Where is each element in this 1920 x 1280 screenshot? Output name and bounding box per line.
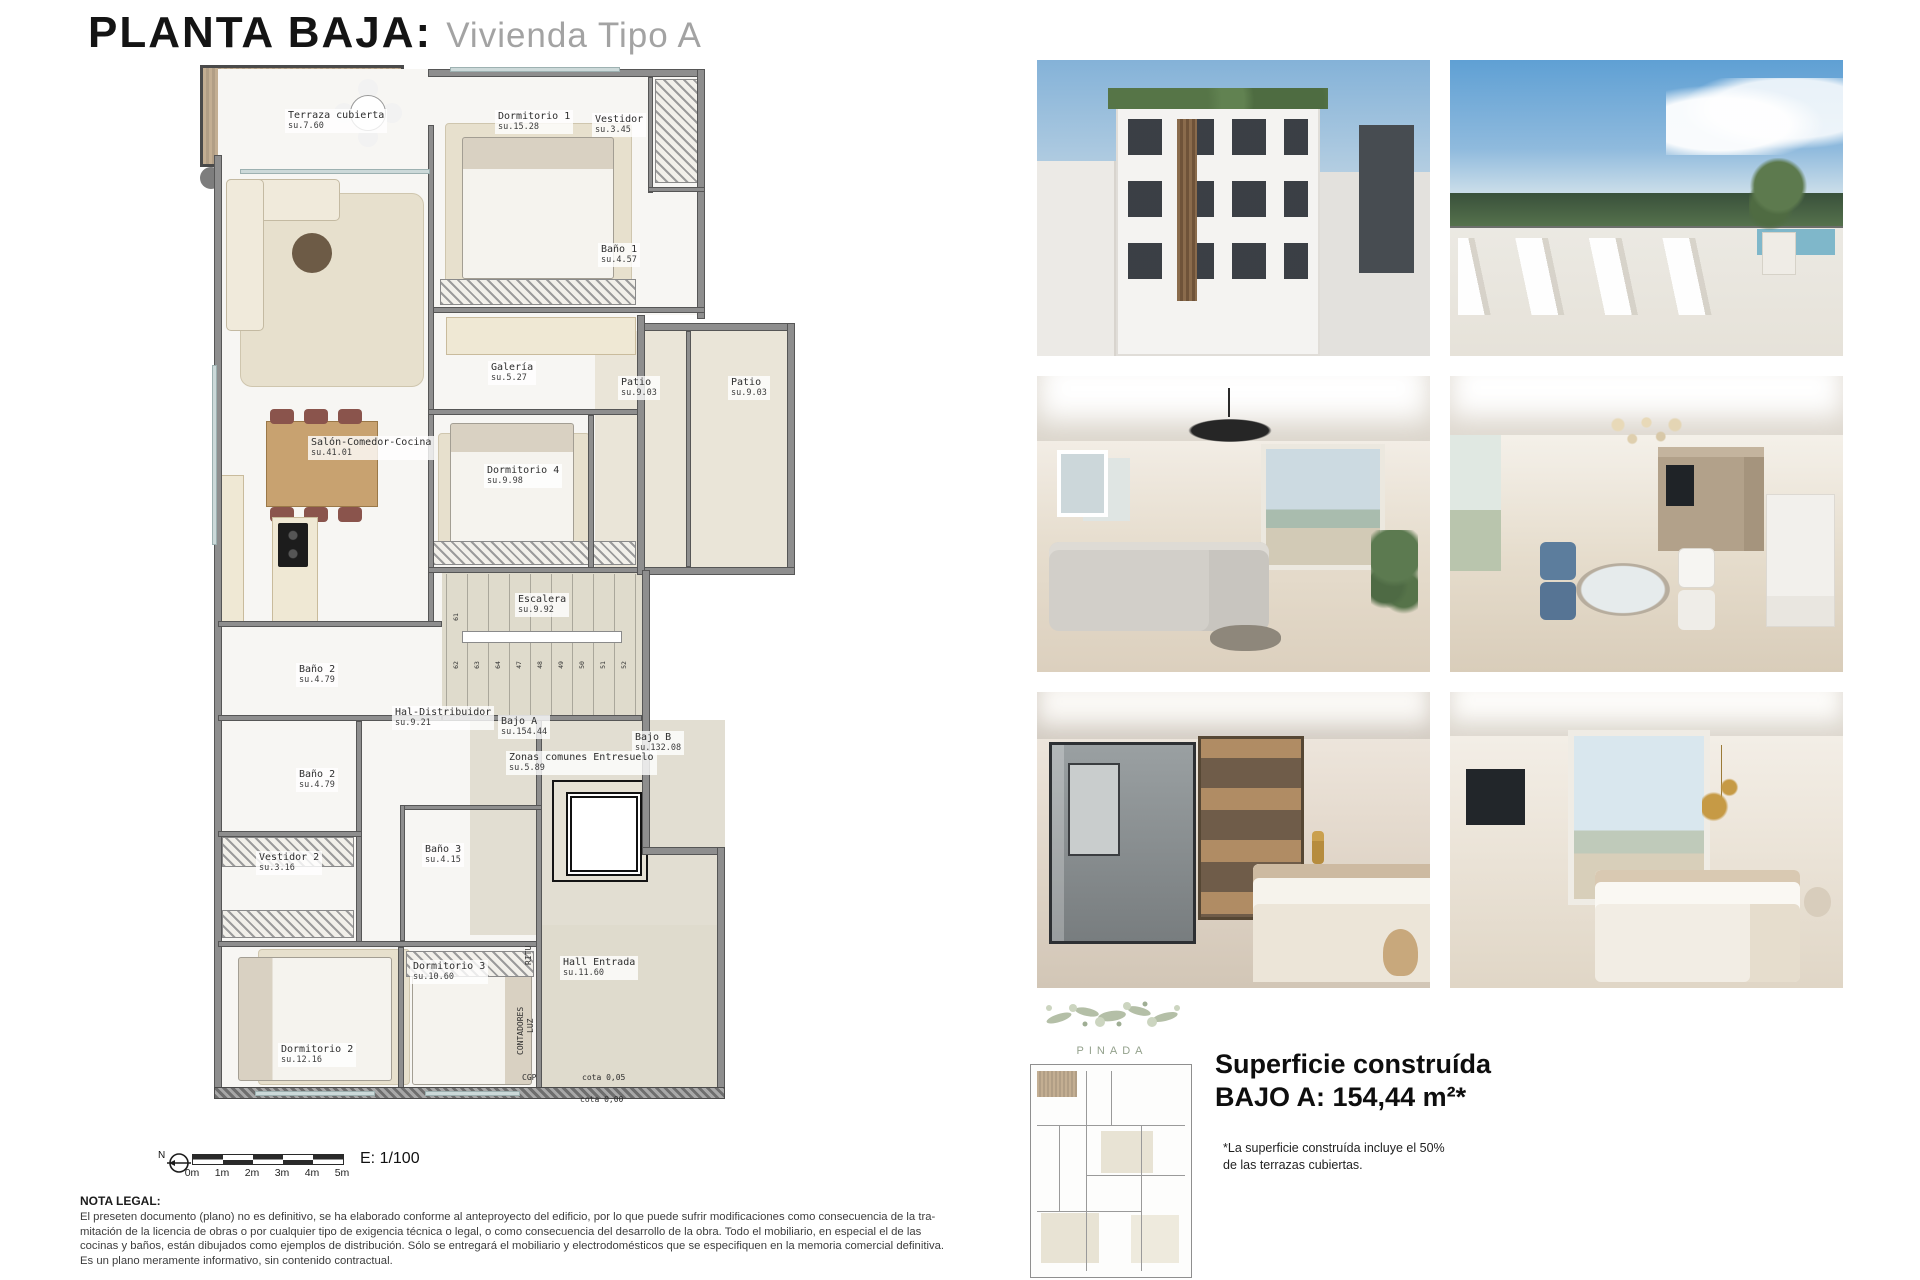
chair-icon bbox=[304, 409, 328, 424]
scale-bar: N E: 1/100 0m1m2m3m4m5m bbox=[158, 1150, 588, 1192]
decorative-graphic bbox=[1046, 1005, 1052, 1011]
wardrobe-icon bbox=[655, 79, 699, 183]
sofa-icon bbox=[226, 179, 264, 331]
window-line bbox=[212, 365, 217, 545]
decorative-graphic: Terraza cubierta bbox=[288, 110, 384, 121]
decorative-graphic: Baño 2 bbox=[299, 769, 335, 780]
decorative-graphic bbox=[1101, 1131, 1153, 1173]
mini-floor-plan bbox=[1030, 1064, 1192, 1278]
wall bbox=[398, 947, 404, 1089]
elevator-cab-icon bbox=[566, 792, 642, 876]
room-label-escalera: Escalerasu.9.92 bbox=[515, 593, 569, 617]
wall bbox=[686, 331, 691, 567]
room-label-ba-o-2: Baño 2su.4.79 bbox=[296, 663, 338, 687]
legal-heading: NOTA LEGAL: bbox=[80, 1194, 960, 1208]
wall bbox=[428, 307, 705, 313]
decorative-graphic: Galería bbox=[491, 362, 533, 373]
decorative-graphic: su.9.03 bbox=[621, 388, 657, 399]
decorative-graphic bbox=[1595, 870, 1799, 982]
page-title: PLANTA BAJA: Vivienda Tipo A bbox=[88, 8, 702, 58]
decorative-graphic: Hal-Distribuidor bbox=[395, 707, 491, 718]
decorative-graphic bbox=[1312, 831, 1324, 864]
decorative-graphic bbox=[1069, 1004, 1077, 1012]
plan-annotation-luz: LUZ bbox=[526, 1019, 535, 1033]
decorative-graphic bbox=[1540, 542, 1575, 580]
decorative-graphic bbox=[1037, 1211, 1141, 1212]
decorative-graphic bbox=[1141, 1125, 1142, 1271]
stair-number: 49 bbox=[557, 661, 565, 669]
wall bbox=[428, 125, 434, 625]
decorative-graphic: Zonas comunes Entresuelo bbox=[509, 752, 654, 763]
decorative-graphic bbox=[1261, 444, 1385, 569]
bed-icon bbox=[450, 423, 574, 553]
decorative-graphic: Dormitorio 2 bbox=[281, 1044, 353, 1055]
room-label-zonas-comunes-entresuelo: Zonas comunes Entresuelosu.5.89 bbox=[506, 751, 657, 775]
wall bbox=[400, 805, 542, 810]
kitchen-counter-icon bbox=[220, 475, 244, 627]
legal-line: Es un plano meramente informativo, sin c… bbox=[80, 1254, 960, 1269]
decorative-graphic bbox=[1458, 238, 1733, 315]
legal-line: El preseten documento (plano) no es defi… bbox=[80, 1210, 960, 1225]
room-label-dormitorio-1: Dormitorio 1su.15.28 bbox=[495, 110, 573, 134]
wall bbox=[787, 323, 795, 575]
wall bbox=[400, 805, 405, 941]
decorative-graphic: Baño 3 bbox=[425, 844, 461, 855]
room-label-patio: Patiosu.9.03 bbox=[618, 376, 660, 400]
decorative-graphic: su.3.45 bbox=[595, 125, 643, 136]
room-label-dormitorio-4: Dormitorio 4su.9.98 bbox=[484, 464, 562, 488]
decorative-graphic: Dormitorio 4 bbox=[487, 465, 559, 476]
plan-annotation-cgp: CGP bbox=[522, 1073, 536, 1082]
room-label-hall-entrada: Hall Entradasu.11.60 bbox=[560, 956, 638, 980]
built-area-summary: Superficie construída BAJO A: 154,44 m²*… bbox=[1215, 1048, 1545, 1173]
scale-tick: 2m bbox=[245, 1167, 260, 1179]
wall bbox=[642, 847, 725, 855]
living-room-photo bbox=[1037, 376, 1430, 672]
wardrobe-icon bbox=[432, 541, 636, 565]
decorative-graphic bbox=[1177, 119, 1197, 300]
scale-tick: 5m bbox=[335, 1167, 350, 1179]
stair-number: 52 bbox=[620, 661, 628, 669]
decorative-graphic: su.3.16 bbox=[259, 863, 319, 874]
wall bbox=[588, 415, 594, 573]
scale-tick: 3m bbox=[275, 1167, 290, 1179]
wall bbox=[642, 567, 795, 575]
decorative-graphic bbox=[1702, 745, 1741, 822]
decorative-graphic bbox=[1131, 1215, 1179, 1263]
stair-handrail-icon bbox=[462, 631, 622, 643]
decorative-graphic: Patio bbox=[731, 377, 761, 388]
wall bbox=[218, 941, 542, 947]
decorative-graphic bbox=[1037, 692, 1430, 739]
room-label-galer-a: Galeríasu.5.27 bbox=[488, 361, 536, 385]
decorative-graphic bbox=[1057, 450, 1108, 517]
decorative-graphic bbox=[1678, 548, 1715, 588]
decorative-graphic: Dormitorio 1 bbox=[498, 111, 570, 122]
decorative-graphic bbox=[1599, 406, 1693, 453]
floor-plan: Terraza cubiertasu.7.60Dormitorio 1su.15… bbox=[200, 65, 810, 1115]
decorative-graphic bbox=[1450, 435, 1501, 571]
decorative-graphic bbox=[1147, 1017, 1157, 1027]
decorative-graphic bbox=[1108, 88, 1328, 109]
decorative-graphic bbox=[1804, 887, 1832, 917]
wardrobe-icon bbox=[440, 279, 636, 305]
decorative-graphic bbox=[1228, 388, 1230, 418]
bed-icon bbox=[462, 137, 614, 279]
room-label-ba-o-1: Baño 1su.4.57 bbox=[598, 243, 640, 267]
wall bbox=[697, 69, 705, 319]
room-label-terraza-cubierta: Terraza cubiertasu.7.60 bbox=[285, 109, 387, 133]
decorative-graphic bbox=[1083, 1022, 1088, 1027]
plan-annotation-ritu: RITU bbox=[524, 946, 533, 965]
decorative-graphic bbox=[1128, 119, 1308, 300]
decorative-graphic: Vestidor 2 bbox=[259, 852, 319, 863]
wall bbox=[218, 621, 442, 627]
decorative-graphic: Bajo B bbox=[635, 732, 671, 743]
legal-note: NOTA LEGAL: El preseten documento (plano… bbox=[80, 1194, 960, 1268]
decorative-graphic bbox=[1068, 763, 1119, 856]
stair-number: 50 bbox=[578, 661, 586, 669]
decorative-graphic bbox=[1086, 1175, 1185, 1176]
window-line bbox=[240, 169, 430, 174]
decorative-graphic: Baño 2 bbox=[299, 664, 335, 675]
room-label-dormitorio-3: Dormitorio 3su.10.60 bbox=[410, 960, 488, 984]
decorative-graphic: su.12.16 bbox=[281, 1055, 353, 1066]
plan-annotation-cota-0-00: cota 0,00 bbox=[580, 1095, 623, 1104]
wall bbox=[717, 847, 725, 1095]
chair-icon bbox=[338, 507, 362, 522]
decorative-graphic: su.9.03 bbox=[731, 388, 767, 399]
decorative-graphic bbox=[1049, 542, 1269, 631]
wall bbox=[428, 409, 642, 415]
decorative-graphic bbox=[1059, 1125, 1060, 1211]
stair-number: 47 bbox=[515, 661, 523, 669]
hob-icon bbox=[278, 523, 308, 567]
decorative-graphic bbox=[1045, 1004, 1178, 1026]
decorative-graphic bbox=[1466, 769, 1525, 825]
scale-tick: 0m bbox=[185, 1167, 200, 1179]
decorative-graphic bbox=[1560, 554, 1686, 625]
decorative-graphic: su.9.98 bbox=[487, 476, 559, 487]
decorative-graphic: Bajo A bbox=[501, 716, 537, 727]
scale-ratio: E: 1/100 bbox=[360, 1150, 420, 1168]
brand-name: PINADA bbox=[1034, 1045, 1190, 1057]
scale-tick: 1m bbox=[215, 1167, 230, 1179]
dining-room-photo bbox=[1450, 376, 1843, 672]
window-line bbox=[425, 1091, 520, 1096]
room-label-dormitorio-2: Dormitorio 2su.12.16 bbox=[278, 1043, 356, 1067]
decorative-graphic bbox=[1095, 1017, 1105, 1027]
galeria-appliances-icon bbox=[446, 317, 636, 355]
wall bbox=[648, 77, 653, 193]
decorative-graphic bbox=[1762, 232, 1795, 275]
decorative-graphic: Vestidor bbox=[595, 114, 643, 125]
room-label-patio: Patiosu.9.03 bbox=[728, 376, 770, 400]
legal-line: cocinas y baños, están dibujados como ej… bbox=[80, 1239, 960, 1254]
wall bbox=[218, 831, 362, 837]
decorative-graphic bbox=[1037, 161, 1116, 356]
decorative-graphic bbox=[1117, 1022, 1122, 1027]
decorative-graphic bbox=[1171, 414, 1289, 447]
decorative-graphic: su.154.44 bbox=[501, 727, 547, 738]
room-label-vestidor-2: Vestidor 2su.3.16 bbox=[256, 851, 322, 875]
elevator-icon bbox=[552, 780, 648, 882]
room-label-ba-o-3: Baño 3su.4.15 bbox=[422, 843, 464, 867]
floor-area bbox=[542, 925, 720, 1089]
stair-number: 62 bbox=[452, 661, 460, 669]
stair-number: 61 bbox=[452, 613, 460, 621]
decorative-graphic bbox=[1074, 1006, 1099, 1019]
decorative-graphic: Hall Entrada bbox=[563, 957, 635, 968]
decorative-graphic: Dormitorio 3 bbox=[413, 961, 485, 972]
rug-icon bbox=[240, 193, 424, 387]
built-area-line2: BAJO A: 154,44 m²* bbox=[1215, 1081, 1545, 1114]
decorative-graphic: Baño 1 bbox=[601, 244, 637, 255]
pinada-logo-icon bbox=[1037, 996, 1187, 1038]
decorative-graphic: su.41.01 bbox=[311, 448, 431, 459]
rooftop-terrace-photo bbox=[1450, 60, 1843, 356]
decorative-graphic: Escalera bbox=[518, 594, 566, 605]
window-line bbox=[255, 1091, 375, 1096]
bedroom-suite-photo bbox=[1037, 692, 1430, 988]
decorative-graphic: su.4.79 bbox=[299, 780, 335, 791]
decorative-graphic bbox=[1123, 1002, 1131, 1010]
decorative-graphic bbox=[1749, 158, 1808, 238]
page-title-sub: Vivienda Tipo A bbox=[446, 16, 702, 56]
decorative-graphic: su.5.27 bbox=[491, 373, 533, 384]
built-area-line1: Superficie construída bbox=[1215, 1048, 1545, 1081]
decorative-graphic bbox=[1143, 1002, 1148, 1007]
stair-number: 51 bbox=[599, 661, 607, 669]
decorative-graphic: su.4.79 bbox=[299, 675, 335, 686]
decorative-graphic bbox=[1086, 1071, 1087, 1271]
decorative-graphic: Patio bbox=[621, 377, 651, 388]
decorative-graphic bbox=[1116, 104, 1320, 356]
decorative-graphic bbox=[1037, 1071, 1077, 1097]
room-label-hal-distribuidor: Hal-Distribuidorsu.9.21 bbox=[392, 706, 494, 730]
wall bbox=[637, 315, 645, 575]
scale-bar-graphic bbox=[192, 1154, 344, 1165]
wall bbox=[642, 570, 650, 855]
room-label-vestidor: Vestidorsu.3.45 bbox=[592, 113, 646, 137]
decorative-graphic bbox=[1666, 465, 1694, 506]
decorative-graphic bbox=[1359, 125, 1414, 273]
decorative-graphic bbox=[1766, 494, 1835, 626]
building-exterior-photo bbox=[1037, 60, 1430, 356]
chair-icon bbox=[270, 409, 294, 424]
decorative-graphic bbox=[1383, 929, 1418, 976]
decorative-graphic: su.9.21 bbox=[395, 718, 491, 729]
north-label: N bbox=[158, 1150, 165, 1161]
wall bbox=[428, 567, 648, 573]
stair-number: 64 bbox=[494, 661, 502, 669]
decorative-graphic bbox=[1210, 625, 1281, 652]
room-label-sal-n-comedor-cocina: Salón-Comedor-Cocinasu.41.01 bbox=[308, 436, 434, 460]
wall bbox=[642, 323, 795, 331]
legal-lines: El preseten documento (plano) no es defi… bbox=[80, 1210, 960, 1268]
wardrobe-icon bbox=[222, 910, 354, 938]
legal-line: mitación de la licencia de obras o por c… bbox=[80, 1225, 960, 1240]
decorative-graphic: su.4.57 bbox=[601, 255, 637, 266]
decorative-graphic: Salón-Comedor-Cocina bbox=[311, 437, 431, 448]
dining-table-icon bbox=[266, 421, 378, 507]
decorative-graphic: su.15.28 bbox=[498, 122, 570, 133]
wall bbox=[648, 187, 705, 192]
decorative-graphic bbox=[1041, 1213, 1099, 1263]
decorative-graphic bbox=[1111, 1071, 1112, 1125]
chair-icon bbox=[338, 409, 362, 424]
built-area-footnote: *La superficie construída incluye el 50%… bbox=[1223, 1140, 1461, 1173]
decorative-graphic: su.4.15 bbox=[425, 855, 461, 866]
scale-tick: 4m bbox=[305, 1167, 320, 1179]
decorative-graphic bbox=[1666, 78, 1843, 155]
room-label-ba-o-2: Baño 2su.4.79 bbox=[296, 768, 338, 792]
decorative-graphic: su.9.92 bbox=[518, 605, 566, 616]
decorative-graphic bbox=[1371, 530, 1418, 631]
decorative-graphic bbox=[1174, 1005, 1180, 1011]
bedroom-photo bbox=[1450, 692, 1843, 988]
plan-annotation-cota-0-05: cota 0,05 bbox=[582, 1073, 625, 1082]
bed-icon bbox=[412, 971, 532, 1085]
stair-number: 63 bbox=[473, 661, 481, 669]
decorative-graphic: su.10.60 bbox=[413, 972, 485, 983]
room-label-bajo-a: Bajo Asu.154.44 bbox=[498, 715, 550, 739]
brand-block: PINADA bbox=[1034, 996, 1190, 1057]
coffee-table-icon bbox=[292, 233, 332, 273]
decorative-graphic: su.5.89 bbox=[509, 763, 654, 774]
decorative-graphic bbox=[1045, 1010, 1072, 1026]
stair-number: 48 bbox=[536, 661, 544, 669]
patio-cell bbox=[691, 331, 788, 567]
page-title-main: PLANTA BAJA: bbox=[88, 8, 432, 58]
plan-annotation-contadores: CONTADORES bbox=[516, 1007, 525, 1055]
window-line bbox=[450, 67, 620, 72]
decorative-graphic: su.11.60 bbox=[563, 968, 635, 979]
decorative-graphic: su.7.60 bbox=[288, 121, 384, 132]
